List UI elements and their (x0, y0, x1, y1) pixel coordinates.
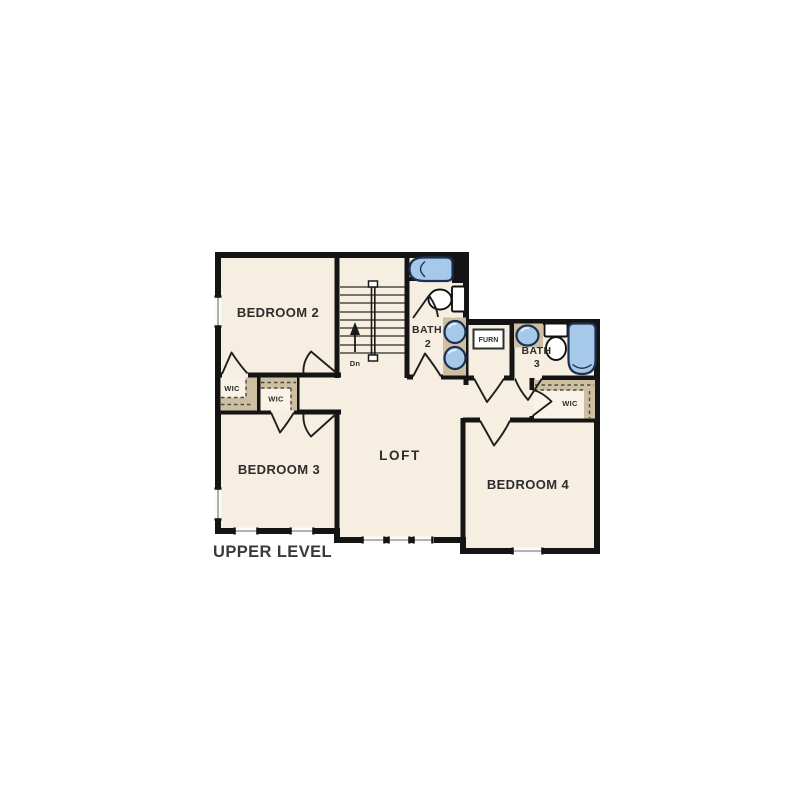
window (362, 537, 385, 544)
toilet-tank-icon (545, 324, 568, 337)
bathtub-icon (569, 324, 596, 375)
window (215, 488, 222, 520)
furnace-closet: FURN (474, 330, 504, 349)
furnace-label: FURN (479, 337, 499, 344)
window (234, 528, 258, 535)
window (215, 296, 222, 327)
loft-label: LOFT (379, 448, 421, 463)
plan-title: UPPER LEVEL (213, 543, 332, 561)
window (290, 528, 314, 535)
wic-label: WIC (562, 399, 578, 408)
stair-rail-cap-top (369, 281, 378, 287)
wall-block (452, 255, 466, 283)
wic-bedroom4-casework: WIC (534, 380, 595, 419)
bedroom2-label: BEDROOM 2 (237, 305, 319, 320)
window (413, 537, 434, 544)
toilet-tank-icon (452, 287, 465, 312)
bath2-label: BATH (412, 324, 442, 336)
bedroom3-label: BEDROOM 3 (238, 462, 320, 477)
window (388, 537, 410, 544)
window (512, 548, 543, 555)
floor-plan-svg: Dn WIC WIC WIC FURN (0, 0, 810, 810)
wic-label: WIC (268, 395, 284, 404)
bathtub-icon (410, 258, 453, 282)
wic-bedroom2-casework: WIC (221, 378, 258, 411)
stair-rail-cap-bottom (369, 355, 378, 361)
bedroom4-label: BEDROOM 4 (487, 477, 570, 492)
stair-down-label: Dn (350, 359, 361, 368)
bath3-label: BATH (522, 345, 552, 357)
wic-label: WIC (224, 384, 240, 393)
wic-bedroom3-casework: WIC (261, 378, 298, 411)
bath3-number: 3 (534, 358, 540, 370)
floor-plan-canvas: Dn WIC WIC WIC FURN (0, 0, 810, 810)
bath2-number: 2 (425, 338, 431, 350)
